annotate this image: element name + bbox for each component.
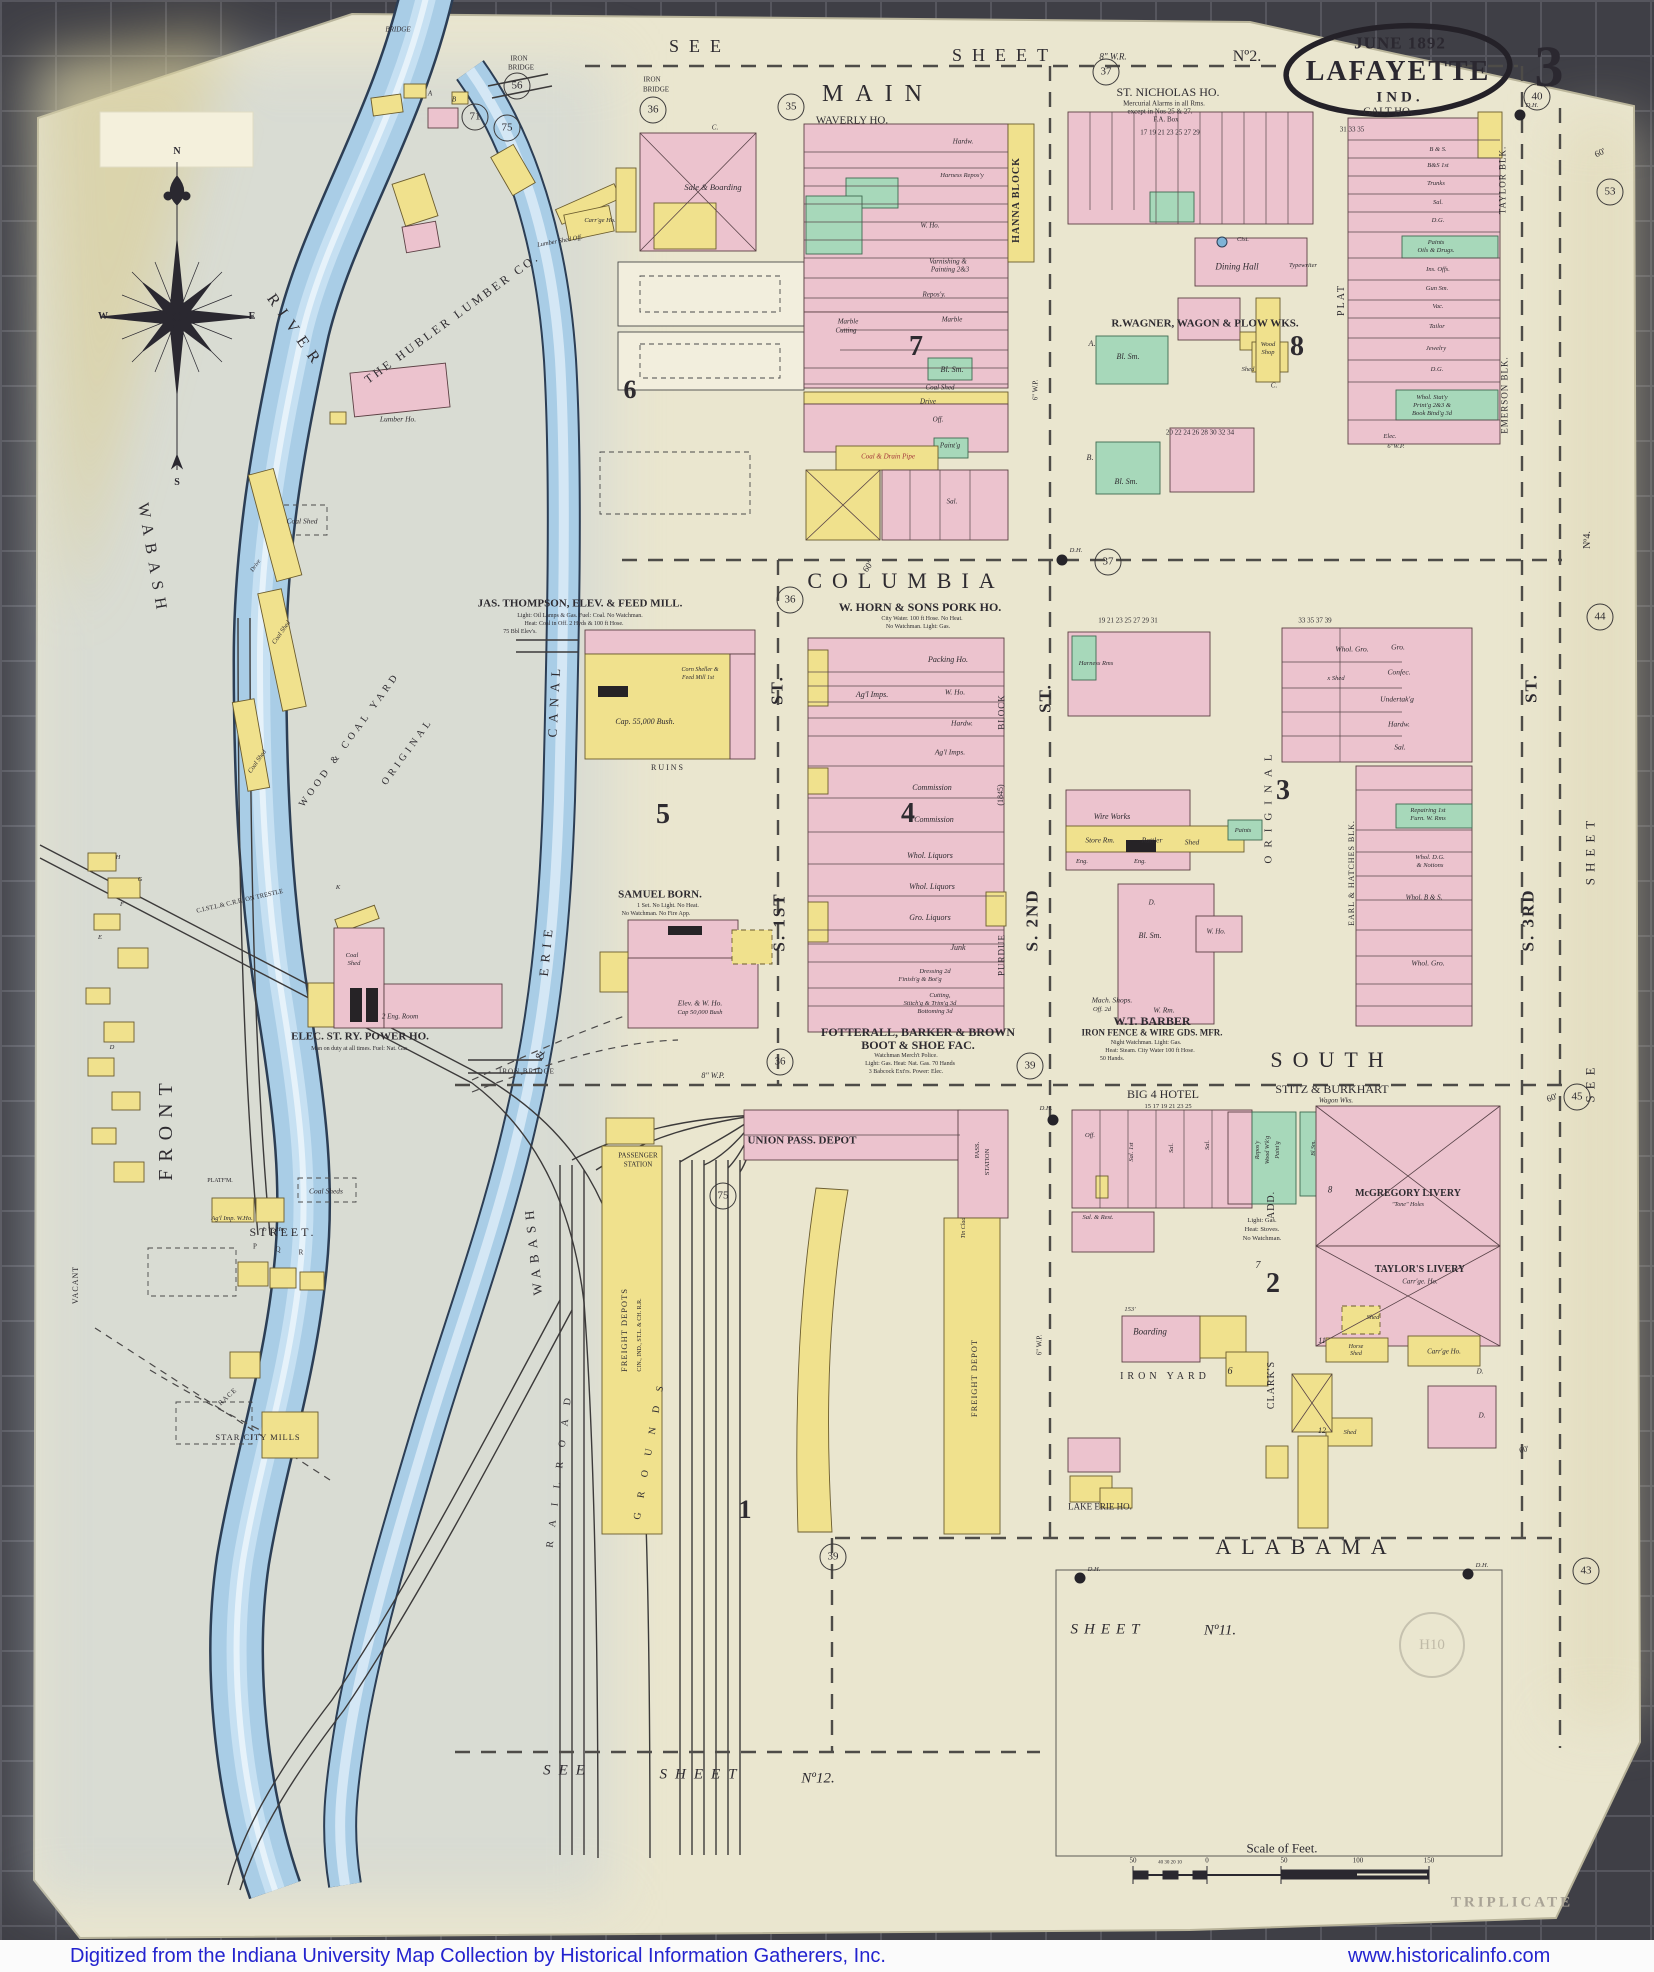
map-label: Boarding: [1133, 1328, 1167, 1337]
map-label: Whol. Gro.: [1411, 959, 1444, 967]
reference-circle: 75: [494, 115, 521, 142]
map-label: BIG 4 HOTEL: [1127, 1088, 1199, 1100]
map-label: CLARK'S: [1267, 1361, 1277, 1409]
map-label: WABASH: [134, 502, 170, 619]
map-label: Shop: [1262, 350, 1275, 357]
map-label: Lumber Ho.: [380, 415, 416, 423]
scanner-bed-background: SEESHEETNº2.8" W.R.MAINWAVERLY HO.ST. NI…: [0, 0, 1654, 1972]
map-label: THE HUBLER LUMBER CO.: [362, 251, 541, 386]
map-label: D: [110, 1045, 115, 1052]
map-label: 6" W.P.: [1037, 1335, 1044, 1356]
map-label: 3: [1276, 777, 1290, 805]
map-label: IRON BRIDGE: [499, 1069, 555, 1076]
map-label: D.: [1477, 1369, 1484, 1376]
map-label: Paint'g: [940, 443, 960, 450]
map-label: Wagon Wks.: [1319, 1098, 1353, 1105]
reference-circle: 37: [1095, 549, 1122, 576]
map-label: Off.: [1085, 1133, 1095, 1140]
map-label: Heat: Coal in Off. 2 Hyds & 100 ft Hose.: [524, 621, 623, 627]
map-label: R.WAGNER, WAGON & PLOW WKS.: [1111, 319, 1298, 330]
map-label: ORIGINAL: [1264, 746, 1275, 863]
map-label: 50: [1281, 1858, 1288, 1865]
footer-credit-text: Digitized from the Indiana University Ma…: [70, 1945, 886, 1968]
map-label: 60': [1545, 1092, 1558, 1104]
map-label: S. 3RD: [1520, 888, 1537, 951]
reference-circle: 44: [1587, 604, 1614, 631]
map-label: Finish'g & Bot'g: [898, 977, 941, 984]
map-label: RUINS: [651, 764, 685, 772]
map-label: Night Watchman. Light: Gas.: [1111, 1040, 1182, 1046]
map-label: D.: [1479, 1413, 1486, 1420]
map-label: 5: [656, 801, 670, 829]
map-label: PURDUE: [998, 934, 1007, 976]
map-label: (1845): [997, 784, 1005, 805]
map-label: Painting 2&3: [931, 267, 969, 274]
map-label: D.H.: [1070, 548, 1083, 555]
map-label: Whol. D.G.: [1415, 855, 1445, 862]
map-label: 8: [1328, 1186, 1333, 1195]
map-label: Nº2.: [1233, 49, 1262, 65]
map-label: Heat: Steam. City Water 100 ft Hose.: [1105, 1048, 1194, 1054]
map-label: except in Nos 25 & 27.: [1128, 109, 1193, 116]
map-label: No Watchman. No Fire App.: [622, 911, 691, 917]
map-label: x Shed: [1327, 676, 1344, 683]
map-label: 6: [1228, 1367, 1233, 1377]
map-label: S. 2ND: [1024, 888, 1041, 951]
map-label: Bl. Sm.: [1139, 932, 1162, 940]
map-label: STAR CITY MILLS: [215, 1433, 300, 1442]
map-label: 31 33 35: [1340, 127, 1365, 134]
map-label: Stitch'g & Trim'g 3d: [904, 1001, 957, 1008]
map-label: COLUMBIA: [807, 570, 1004, 592]
map-label: D.H.: [1476, 1563, 1489, 1570]
map-label: 33 35 37 39: [1298, 618, 1331, 625]
map-label: Dining Hall: [1215, 263, 1258, 272]
map-label: Coal Shed: [272, 620, 293, 646]
map-label: Paints: [1428, 240, 1445, 247]
map-label: D.H.: [1088, 1567, 1101, 1574]
map-label: TRIPLICATE: [1451, 1896, 1573, 1911]
map-label: G R O U N D S: [633, 1380, 667, 1521]
map-label: Coal Shed: [286, 517, 317, 525]
map-label: FREIGHT DEPOT: [970, 1339, 979, 1417]
map-label: G: [138, 877, 143, 884]
map-label: Lumber Shed Off.: [537, 235, 583, 249]
map-label: Nº4.: [1583, 531, 1593, 549]
map-label: Hardw.: [951, 719, 973, 727]
map-label: Carr'ge Ho.: [584, 218, 615, 225]
map-label: F.A. Box: [1153, 117, 1178, 124]
map-label: IRON FENCE & WIRE GDS. MFR.: [1081, 1029, 1222, 1038]
map-label: Sal. & Rest.: [1082, 1215, 1113, 1222]
map-label: Feed Mill 1st: [682, 675, 714, 681]
map-label: BOOT & SHOE FAC.: [861, 1039, 975, 1051]
map-label: Rattler: [1142, 836, 1163, 844]
map-label: 8: [1290, 333, 1304, 361]
map-label: Store Rm.: [1085, 836, 1114, 844]
map-label: WOOD & COAL YARD: [298, 671, 403, 810]
map-label: ST.: [1523, 673, 1540, 703]
map-label: HANNA BLOCK: [1012, 157, 1022, 243]
map-label: Gro. Liquors: [909, 914, 951, 922]
map-label: TAYLOR'S LIVERY: [1375, 1265, 1466, 1275]
map-label: D.G.: [1432, 218, 1445, 225]
map-label: 100: [1353, 1858, 1364, 1865]
map-label: ADD.: [1267, 1191, 1277, 1219]
map-label: D.H.: [1040, 1106, 1053, 1113]
hydrant-marker: [1075, 1573, 1086, 1584]
map-label: Cist.: [1237, 237, 1249, 244]
digitization-footer: Digitized from the Indiana University Ma…: [0, 1940, 1654, 1972]
map-label: B.: [1087, 454, 1094, 462]
hydrant-marker: [1048, 1115, 1059, 1126]
map-label: Whol. Gro.: [1335, 645, 1368, 653]
map-label: H: [116, 855, 121, 862]
map-label: Marble: [942, 317, 963, 324]
map-label: Tailor: [1429, 324, 1445, 331]
scale-bar-title: Scale of Feet.: [1246, 1842, 1317, 1855]
map-label: Repairing 1st: [1410, 808, 1445, 815]
map-label: 12: [1318, 1427, 1326, 1435]
map-label: Off. 2d: [1093, 1007, 1111, 1014]
map-label: Book Bind'g 3d: [1412, 411, 1452, 418]
map-label: Sale & Boarding: [684, 183, 741, 192]
map-label: PASSENGER: [618, 1153, 657, 1160]
map-label: Gun Sm.: [1426, 286, 1448, 293]
map-label: ST.: [1037, 683, 1054, 713]
map-label: Shed: [1350, 1351, 1362, 1357]
map-label: No Watchman. Light: Gas.: [886, 624, 950, 630]
map-label: 6: [624, 377, 637, 403]
map-label: Q: [275, 1247, 280, 1254]
reference-circle: 35: [778, 94, 805, 121]
map-label: Cap. 55,000 Bush.: [615, 718, 674, 726]
map-label: Ag'l Imps.: [935, 748, 965, 756]
map-label: R A I L R O A D: [545, 1392, 574, 1549]
map-label: Tin Clad: [961, 1218, 967, 1239]
map-label: SHEET: [952, 46, 1058, 64]
map-label: GALT HO.: [1363, 107, 1413, 118]
map-label: Coal Shed: [926, 385, 955, 392]
map-label: 7: [909, 333, 923, 361]
map-label: Paint'g: [1275, 1141, 1281, 1158]
map-label: Whol. Liquors: [907, 852, 953, 860]
map-label: E: [98, 935, 102, 942]
map-label: City Water. 100 ft Hose. No Heat.: [881, 616, 962, 622]
map-label: STITZ & BURKHART: [1275, 1083, 1388, 1095]
hydrant-marker: [1515, 110, 1526, 121]
map-label: & Notions: [1417, 863, 1444, 870]
map-label: I. W. Ho.: [262, 1227, 285, 1234]
map-label: W. Ho.: [921, 223, 940, 230]
footer-url[interactable]: www.historicalinfo.com: [1348, 1945, 1550, 1968]
map-label: Bl. Sm.: [1117, 353, 1140, 361]
title-city: LAFAYETTE: [1306, 58, 1491, 86]
map-label: Hardw.: [953, 139, 973, 146]
map-label: FRONT: [156, 1075, 176, 1181]
map-label: Commission: [912, 784, 952, 792]
map-label: 3 Babcock Ext'rs. Power: Elec.: [869, 1069, 943, 1075]
map-label: 75 Bbl Elev's.: [503, 629, 537, 635]
map-label: Eng.: [1134, 859, 1146, 866]
map-label: Junk: [950, 944, 965, 952]
map-label: PLATF'M.: [207, 1178, 233, 1184]
map-label: VACANT: [72, 1266, 80, 1304]
map-label: Whol. B & S.: [1406, 895, 1443, 902]
map-label: Confec.: [1387, 668, 1410, 676]
map-label: ST.: [769, 675, 786, 705]
map-label: C.: [1271, 383, 1277, 390]
map-label: Packing Ho.: [928, 656, 968, 664]
map-label: PASS.: [975, 1142, 982, 1159]
map-label: Heat: Stoves.: [1245, 1227, 1280, 1234]
reference-circle: 75: [710, 1183, 737, 1210]
map-label: Sal.: [1394, 743, 1405, 751]
map-label: ELEC. ST. RY. POWER HO.: [291, 1032, 429, 1043]
map-label: Cutting,: [929, 993, 950, 1000]
map-label: Nº12.: [801, 1772, 834, 1787]
map-label: Horse: [1349, 1344, 1364, 1350]
reference-circle: 45: [1564, 1084, 1591, 1111]
map-label: S. 1ST: [771, 892, 788, 951]
map-label: Carr'ge Ho.: [1427, 1349, 1461, 1356]
map-label: Sal.: [1433, 200, 1443, 207]
reference-circle: 37: [1093, 59, 1120, 86]
map-label: Undertak'g: [1380, 695, 1414, 703]
compass-west-label: W: [98, 312, 108, 322]
map-label: 2: [1266, 1270, 1280, 1298]
map-label: 50 Hands.: [1100, 1056, 1124, 1062]
map-label: Harness Repos'y: [940, 173, 983, 180]
map-label: P: [253, 1244, 257, 1251]
map-label: A.: [1089, 340, 1096, 348]
map-label: Commission: [914, 816, 954, 824]
map-label: Sal.: [1205, 1140, 1212, 1150]
map-label: IRON: [510, 56, 527, 63]
map-label: Coal: [346, 953, 359, 960]
map-label: Light: Gas. Heat: Nat. Gas. 70 Hands: [865, 1061, 955, 1067]
map-label: 60': [1518, 1445, 1529, 1455]
map-label: ERIE: [537, 923, 555, 977]
map-label: Gro.: [1391, 643, 1405, 651]
map-label: 6"W.P.: [1387, 444, 1404, 451]
map-label: Harness Rms: [1079, 661, 1114, 668]
map-label: Wood W'k'g: [1265, 1136, 1271, 1164]
map-label: Coal Shed: [248, 749, 269, 775]
map-label: C.: [712, 125, 718, 132]
map-label: CANAL: [546, 662, 563, 737]
map-label: 8" W.P.: [701, 1072, 724, 1080]
map-label: ST. NICHOLAS HO.: [1116, 86, 1219, 98]
map-label: TAYLOR BLK.: [1499, 146, 1508, 214]
map-label: SHEET: [1071, 1623, 1146, 1638]
map-label: McGREGORY LIVERY: [1355, 1189, 1461, 1199]
map-label: W.T. BARBER: [1113, 1015, 1190, 1027]
map-label: Repos'y.: [922, 292, 945, 299]
map-label: Typewriter: [1289, 263, 1317, 270]
map-label: 2 Eng. Room: [382, 1014, 418, 1021]
map-label: BRIDGE: [385, 27, 410, 34]
reference-circle: 56: [504, 73, 531, 100]
map-label: 11: [1318, 1337, 1325, 1345]
map-label: Shed: [348, 961, 361, 968]
map-label: Off.: [933, 417, 944, 424]
map-label: Paints: [1235, 828, 1252, 835]
map-label: Shed: [1367, 1315, 1380, 1322]
reference-circle: 53: [1597, 179, 1624, 206]
map-label: Oils & Drugs.: [1417, 248, 1454, 255]
map-label: Mach. Shops.: [1092, 996, 1133, 1004]
map-label: Wood: [1261, 342, 1276, 349]
map-label: D.H.: [1526, 103, 1539, 110]
map-label: Varnishing &: [929, 259, 967, 266]
map-label: 1: [739, 1497, 752, 1523]
map-label: RIVER: [263, 291, 327, 372]
hydrant-marker: [1057, 555, 1068, 566]
map-label: CIN., IND., ST.L. & CH. R.R.: [637, 1298, 643, 1371]
map-label: Print'g 2&3 &: [1413, 403, 1451, 410]
map-label: Light: Oil Lamps & Gas. Fuel: Coal. No W…: [517, 613, 643, 619]
map-label: R: [299, 1250, 304, 1257]
reference-circle: 43: [1573, 1558, 1600, 1585]
map-label: Mercurial Alarms in all Rms.: [1123, 101, 1205, 108]
map-label: Bottoming 3d: [917, 1009, 952, 1016]
map-label: Ins. Offs.: [1426, 267, 1450, 274]
map-label: PLAT: [1337, 284, 1347, 316]
map-label: WABASH: [522, 1204, 544, 1296]
map-label: B: [452, 97, 456, 104]
map-label: SAMUEL BORN.: [618, 890, 702, 901]
map-label: 4: [901, 800, 915, 828]
map-label: Sal.: [1169, 1143, 1176, 1153]
map-label: BRIDGE: [643, 87, 669, 94]
map-label: SEE: [669, 37, 731, 55]
map-label: 50: [1130, 1858, 1137, 1865]
sheet-number: 3: [1535, 38, 1564, 96]
map-label: D.: [1149, 900, 1156, 907]
title-date: JUNE 1892: [1354, 35, 1446, 52]
map-label: Whol. Liquors: [909, 883, 955, 891]
circular-stamp: H10: [1399, 1612, 1465, 1678]
map-label: SHEET: [1584, 815, 1597, 885]
map-label: A: [428, 91, 432, 98]
map-label: LAKE ERIE HO.: [1068, 1503, 1132, 1512]
hydrant-marker: [1463, 1569, 1474, 1580]
map-label: Ag'l Imp. W.Ho.: [211, 1216, 252, 1223]
map-label: EMERSON BLK.: [1501, 356, 1510, 434]
compass-north-label: N: [173, 147, 180, 157]
map-label: Jewelry: [1426, 346, 1446, 353]
map-label: Sal.: [947, 499, 958, 506]
map-label: Sal. 1st: [1129, 1142, 1136, 1161]
map-label: SOUTH: [1270, 1049, 1393, 1071]
map-label: 15 17 19 21 23 25: [1144, 1104, 1191, 1111]
map-label: Carr'ge. Ho.: [1402, 1279, 1438, 1286]
compass-east-label: E: [249, 312, 256, 322]
map-label: Dressing 2d: [919, 969, 950, 976]
map-label: 1 Set. No Light. No Heat.: [637, 903, 699, 909]
map-label: Furn. W. Rms: [1410, 816, 1446, 823]
map-label: Watchman Merch't Police.: [874, 1053, 937, 1059]
reference-circle: 36: [640, 97, 667, 124]
map-label: IRON: [643, 77, 660, 84]
map-label: "Tone" Holes: [1392, 1202, 1424, 1208]
map-label: Elev. & W. Ho.: [678, 999, 723, 1007]
reference-circle: 39: [1017, 1053, 1044, 1080]
reference-circle: 36: [777, 587, 804, 614]
map-label: FREIGHT DEPOTS: [620, 1288, 629, 1372]
map-label: W. Ho.: [1207, 929, 1226, 936]
reference-circle: 71: [462, 104, 489, 131]
map-label: Eng.: [1076, 859, 1088, 866]
map-label: Man on duty at all times. Fuel: Nat. Gas…: [311, 1046, 409, 1052]
map-label: Shed: [1242, 367, 1255, 374]
map-label: Nº11.: [1204, 1624, 1236, 1639]
map-label: 6" W.P.: [1033, 380, 1040, 401]
map-label: Bl.Sm.: [1311, 1140, 1317, 1156]
map-label: 40 30 20 10: [1158, 1861, 1182, 1866]
map-label: BRIDGE: [508, 65, 534, 72]
map-label: Ag'l Imps.: [856, 691, 888, 699]
map-label: Corn Sheller &: [682, 667, 719, 673]
map-label: Bl. Sm.: [941, 366, 964, 374]
map-label: ORIGINAL: [380, 717, 435, 788]
map-label: RACE: [217, 1387, 239, 1407]
reference-circle: 39: [820, 1544, 847, 1571]
map-label: MAIN: [822, 82, 934, 106]
map-label: Shed: [1344, 1430, 1357, 1437]
map-label: STATION: [624, 1162, 653, 1169]
reference-circle: 36: [767, 1049, 794, 1076]
map-label: Cap 50,000 Bush: [678, 1010, 723, 1017]
map-label: D.G.: [1431, 367, 1444, 374]
map-label: STATION: [985, 1149, 992, 1176]
map-label: ALABAMA: [1215, 1536, 1396, 1558]
map-label: 150: [1424, 1858, 1435, 1865]
map-label: Hardw.: [1388, 720, 1410, 728]
map-label: Trunks: [1427, 181, 1445, 188]
map-label: Marble: [838, 319, 859, 326]
map-label: C.I.ST.L.& C.R.R. ON TRESTLE: [196, 889, 284, 915]
map-label: 7: [1256, 1261, 1261, 1271]
map-label: 17 19 21 23 25 27 29: [1140, 130, 1200, 137]
map-label: SEE: [543, 1764, 593, 1779]
map-label: Repos'y: [1255, 1141, 1261, 1160]
map-label: W. Ho.: [945, 688, 965, 696]
compass-south-label: S: [174, 478, 180, 488]
map-label: 60': [1593, 147, 1606, 160]
map-label: Coal Sheds: [309, 1187, 343, 1195]
map-label: &: [533, 1049, 546, 1060]
map-label: 0: [1205, 1858, 1209, 1865]
map-label: Drive: [920, 399, 936, 406]
map-label: JAS. THOMPSON, ELEV. & FEED MILL.: [478, 599, 683, 610]
map-label: W. HORN & SONS PORK HO.: [839, 601, 1002, 613]
map-label: B & S.: [1429, 147, 1446, 154]
map-label: W. Rm.: [1153, 1006, 1174, 1014]
map-label: Wire Works: [1094, 813, 1131, 821]
map-label: IRON YARD: [1120, 1372, 1210, 1382]
map-label: Drive: [250, 559, 263, 574]
map-label: 153': [1124, 1307, 1135, 1314]
map-label: FOTTERALL, BARKER & BROWN: [821, 1026, 1015, 1038]
map-label: F: [120, 902, 124, 909]
map-label: Coal & Drain Pipe: [861, 454, 915, 461]
map-label: 20 22 24 26 28 30 32 34: [1166, 430, 1234, 437]
title-state: IND.: [1376, 91, 1423, 106]
map-label: Shed: [1185, 838, 1200, 846]
map-label: SHEET: [660, 1768, 745, 1783]
